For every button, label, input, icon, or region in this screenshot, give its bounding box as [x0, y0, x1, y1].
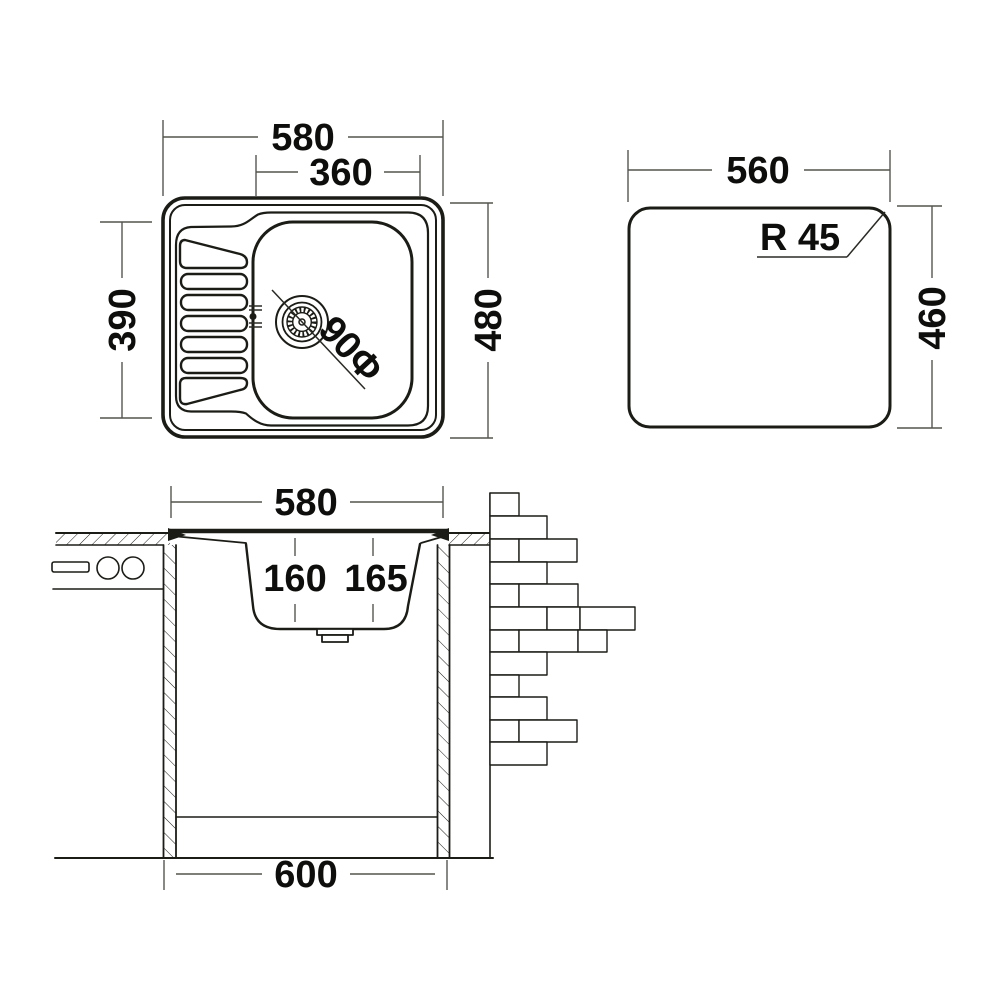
brick — [547, 607, 580, 630]
dim-plan-drainboard-depth-text: 390 — [102, 288, 144, 351]
dim-cutout-height-text: 460 — [912, 286, 954, 349]
sink-inner-edge — [170, 205, 436, 430]
dim-bowl-depth-rear: 165 — [344, 538, 407, 622]
dim-plan-overall-depth-text: 480 — [468, 288, 510, 351]
brick — [519, 720, 577, 742]
brick — [490, 539, 519, 562]
drainboard-rib — [180, 240, 247, 268]
cabinet-left-wall — [164, 545, 177, 858]
dim-section-rim-width: 580 — [171, 482, 443, 524]
dim-plan-drainboard-depth: 390 — [100, 222, 152, 418]
dim-bowl-depth-front-text: 160 — [263, 558, 326, 600]
drawer-knob — [122, 557, 144, 579]
brick — [519, 584, 578, 607]
brick — [490, 493, 519, 516]
countertop-left — [56, 533, 170, 545]
dim-bowl-depth-front: 160 — [263, 538, 326, 622]
drainboard-ribs — [180, 240, 247, 404]
drainboard-rib — [180, 378, 247, 404]
brick — [490, 562, 547, 584]
brick — [490, 630, 519, 652]
faucet-hole-mark — [249, 306, 262, 327]
dim-cutout-height: 460 — [897, 206, 954, 428]
dim-cutout-width: 560 — [628, 150, 890, 202]
drainboard-rib — [181, 274, 247, 289]
section-view: 580 — [52, 482, 635, 896]
drawer-front — [52, 557, 163, 589]
brick — [519, 539, 577, 562]
dim-plan-overall-depth: 480 — [450, 203, 510, 438]
dim-plan-bowl-width-text: 360 — [309, 152, 372, 194]
brick — [490, 742, 547, 765]
bricks — [490, 493, 635, 765]
drainboard-rib — [181, 316, 247, 331]
drainboard-rib — [181, 337, 247, 352]
faucet-hole-dot — [250, 313, 257, 320]
corner-radius-text: R 45 — [760, 217, 840, 259]
brick — [490, 675, 519, 697]
plan-view: 90Φ 580 360 390 — [100, 117, 510, 438]
brick — [580, 607, 635, 630]
cutout-view: 560 460 R 45 — [628, 150, 954, 428]
dim-plan-overall-width: 580 — [163, 117, 443, 196]
dim-cabinet-width: 600 — [164, 854, 447, 896]
dim-section-rim-width-text: 580 — [274, 482, 337, 524]
dim-bowl-depth-rear-text: 165 — [344, 558, 407, 600]
brick — [578, 630, 607, 652]
drawer-knob — [97, 557, 119, 579]
drawing-canvas: 90Φ 580 360 390 — [0, 0, 1000, 1000]
cabinet-right-wall — [438, 545, 450, 858]
drainboard-rib — [181, 358, 247, 373]
drawer-handle — [52, 562, 89, 572]
brick — [490, 607, 547, 630]
drain-fitting — [317, 629, 353, 642]
dim-cutout-width-text: 560 — [726, 150, 789, 192]
brick-wall — [490, 493, 635, 858]
sink-technical-drawing: 90Φ 580 360 390 — [0, 0, 1000, 1000]
brick — [519, 630, 578, 652]
brick — [490, 720, 519, 742]
brick — [490, 652, 547, 675]
drainboard-rib — [181, 295, 247, 310]
rim-slope-right — [421, 536, 445, 543]
brick — [490, 516, 547, 539]
drainboard-slope — [172, 536, 246, 543]
countertop-right — [447, 533, 490, 545]
corner-radius-callout: R 45 — [757, 212, 885, 259]
brick — [490, 584, 519, 607]
brick — [490, 697, 547, 720]
dim-cabinet-width-text: 600 — [274, 854, 337, 896]
